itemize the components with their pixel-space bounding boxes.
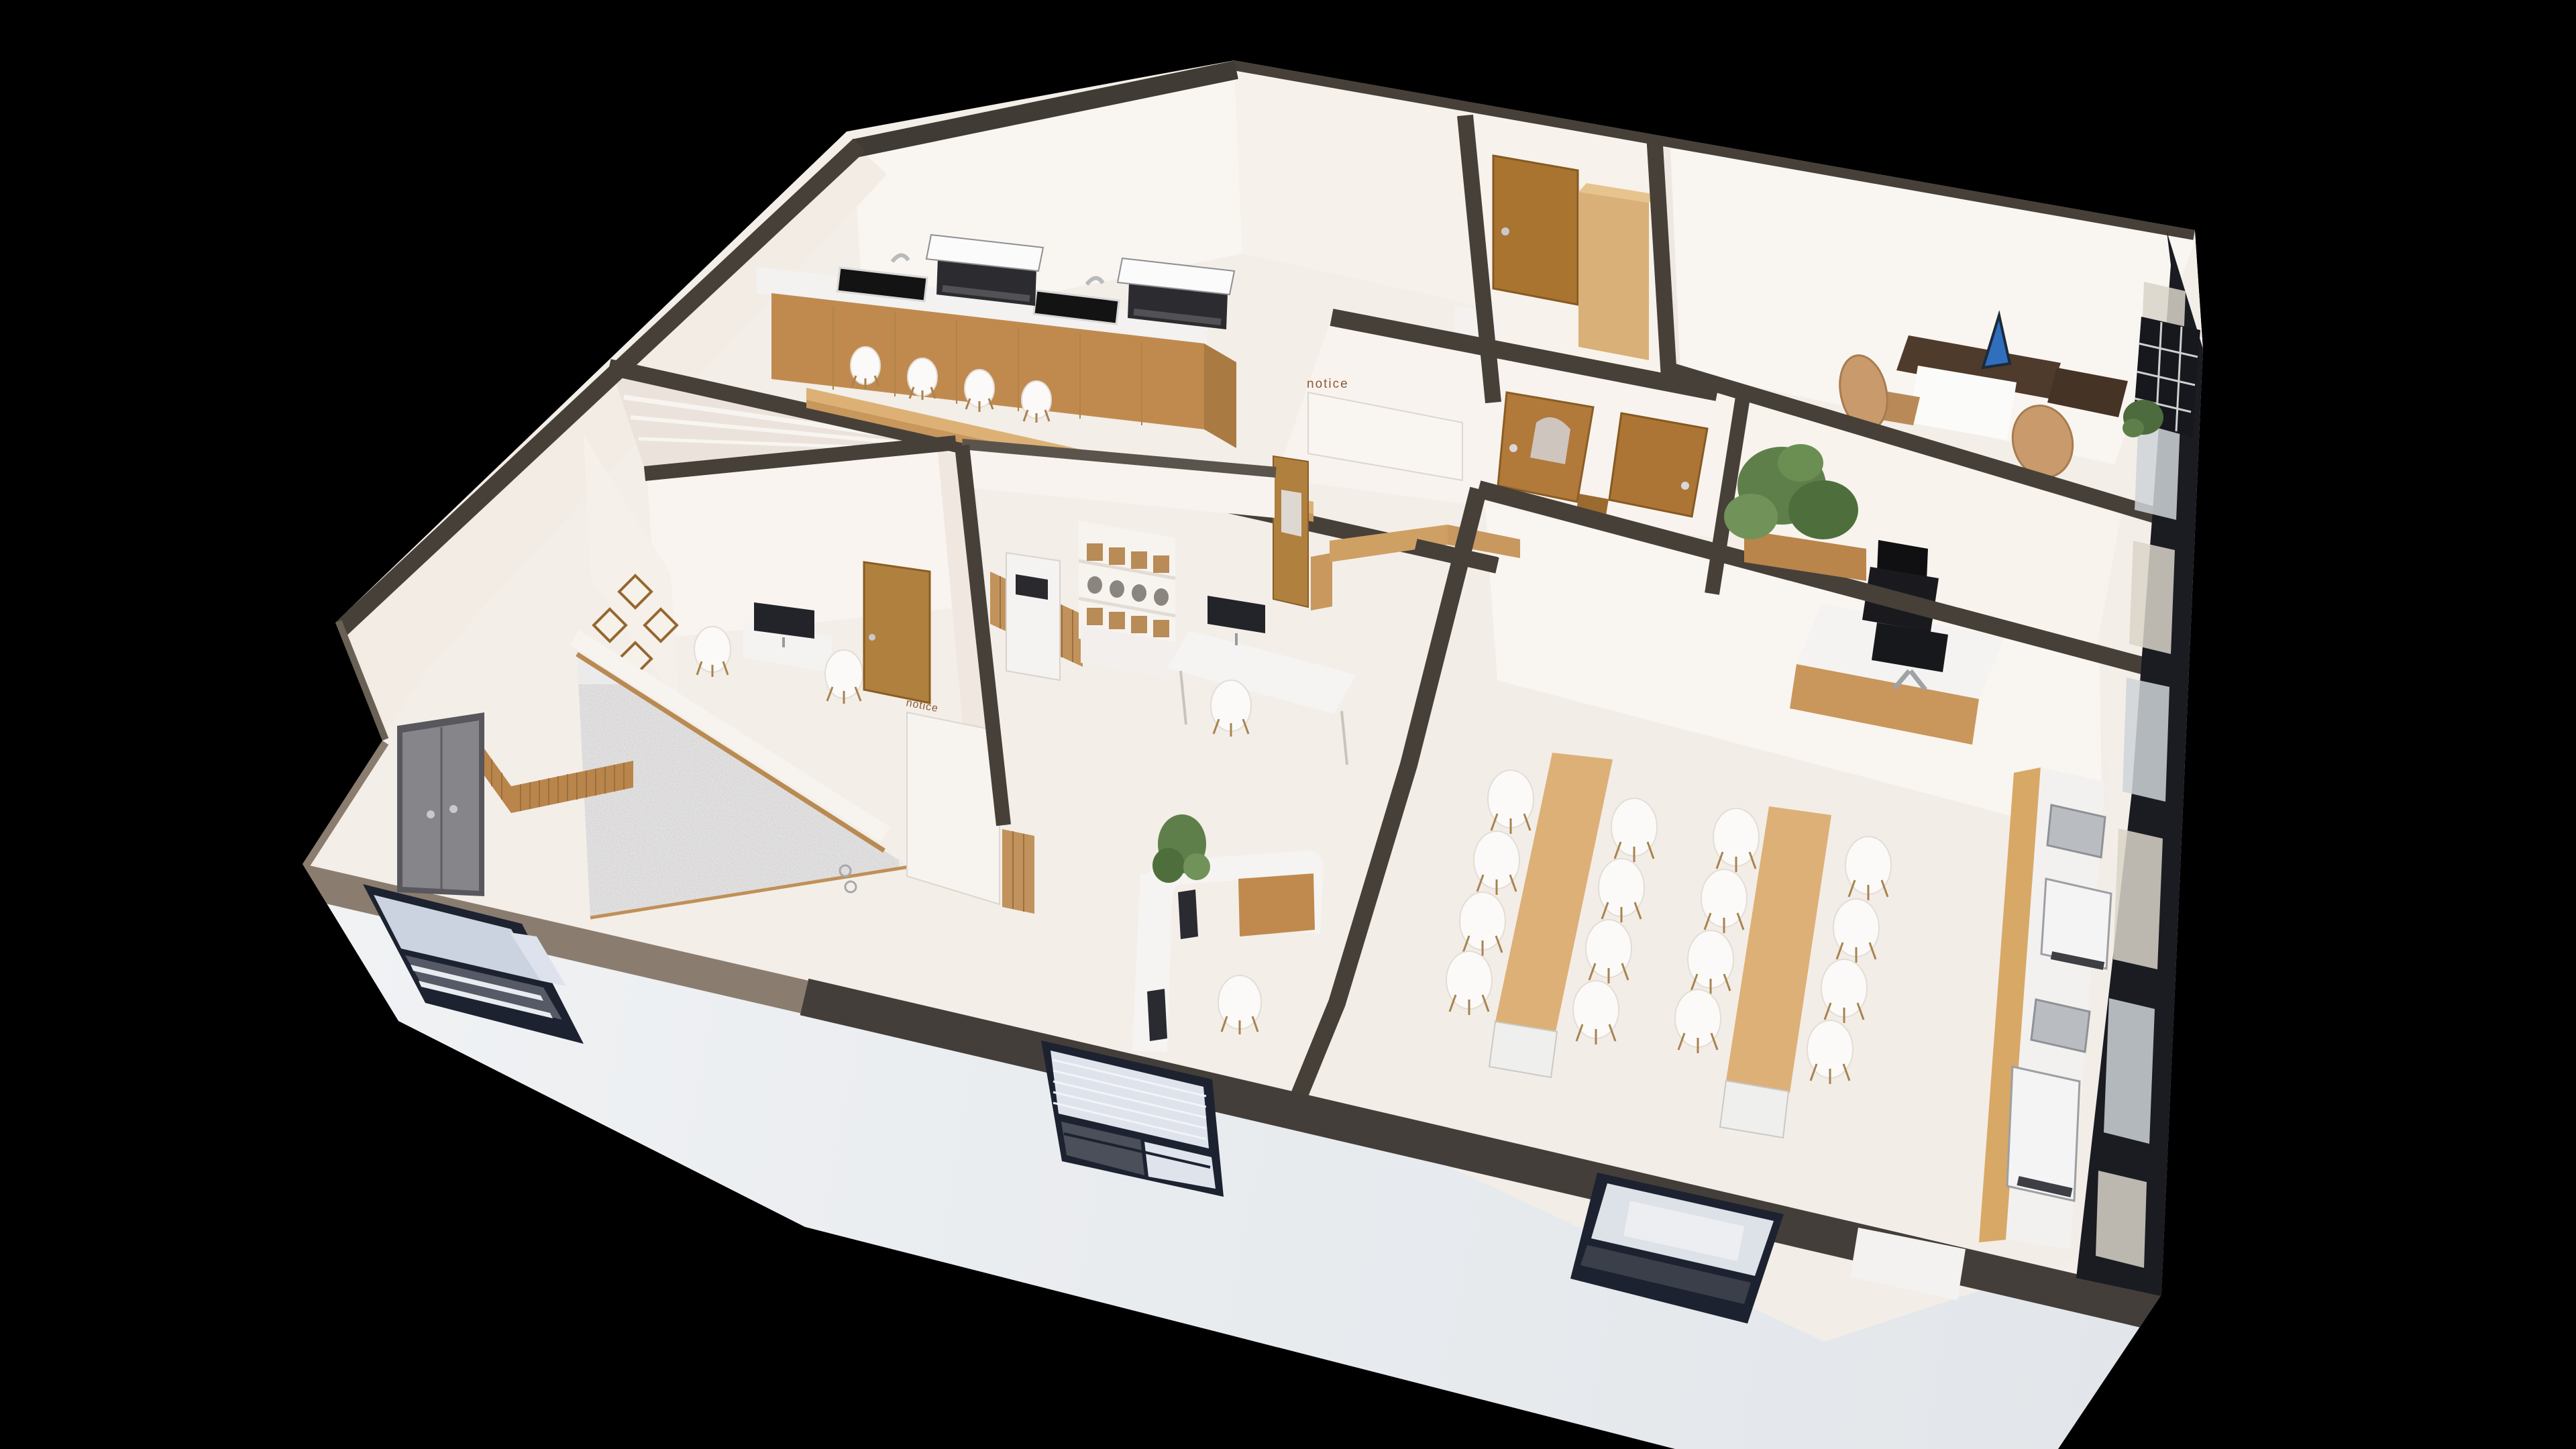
svg-text:notice: notice: [1307, 377, 1349, 391]
